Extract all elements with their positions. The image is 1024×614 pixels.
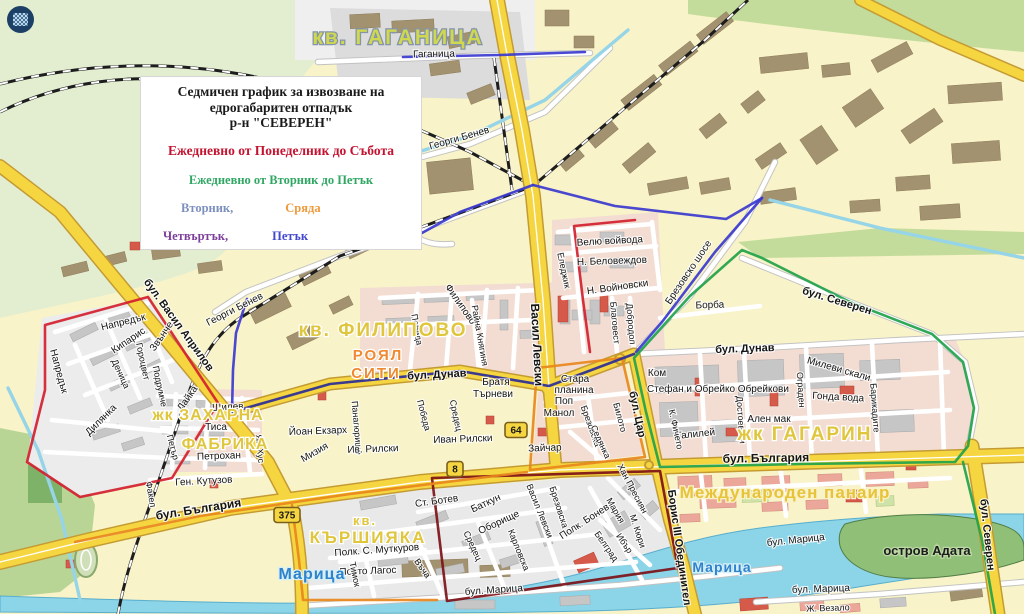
street-label: Стара	[561, 374, 590, 385]
area-label: ФАБРИКА	[182, 436, 269, 453]
road-shield: 64	[505, 423, 527, 438]
legend-thursday: Четвъртък,	[163, 229, 228, 244]
legend-friday: Петък	[272, 229, 308, 244]
street-label: бул. България	[723, 450, 810, 466]
road-shield: 375	[274, 508, 300, 523]
street-label: Ком	[648, 368, 666, 379]
legend-title-line2: едрогабаритен отпадък	[141, 100, 421, 116]
checker-icon	[13, 13, 28, 26]
map-viewport[interactable]: 648375 ГаганицаГеорги БеневГеорги БеневВ…	[0, 0, 1024, 614]
legend-daily-tue-fri: Ежедневно от Вторник до Петък	[141, 173, 421, 188]
street-label: бул. Марица	[792, 582, 851, 596]
area-label: Марица	[692, 559, 751, 575]
legend-daily-mon-sat: Ежедневно от Понеделник до Събота	[141, 143, 421, 159]
area-label: остров Адата	[883, 543, 971, 558]
street-label: Борба	[695, 298, 725, 311]
street-label: Ж. Везало	[806, 602, 850, 614]
area-label: кв. ФИЛИПОВО	[298, 320, 467, 341]
street-label: бул. Дунав	[715, 342, 775, 356]
legend-title-line3: р-н "СЕВЕРЕН"	[141, 115, 421, 131]
svg-text:8: 8	[452, 465, 458, 476]
street-label: Манол	[544, 408, 575, 419]
area-label: СИТИ	[351, 365, 401, 382]
legend-wednesday: Сряда	[285, 201, 320, 216]
street-label: Поп	[555, 396, 573, 407]
street-label: Търневи	[473, 389, 513, 400]
area-label: жк ЗАХАРНА	[151, 407, 263, 424]
area-label: Международен панаир	[680, 483, 891, 502]
area-label: Марица	[279, 566, 346, 583]
road-shield: 8	[447, 462, 463, 477]
legend-tuesday: Вторник,	[181, 201, 233, 216]
street-label: планина	[554, 385, 593, 396]
legend-title-line1: Седмичен график за извозване на	[141, 84, 421, 100]
legend-title: Седмичен график за извозване на едрогаба…	[141, 84, 421, 131]
legend-panel: Седмичен график за извозване на едрогаба…	[140, 76, 422, 250]
map-control-icon[interactable]	[7, 6, 34, 33]
area-label: КЪРШИЯКА	[310, 528, 427, 547]
street-label: Иван Рилски	[433, 433, 493, 446]
roundabout	[645, 461, 653, 469]
street-label: Зайчар	[528, 442, 562, 454]
area-label: РОЯЛ	[353, 347, 404, 364]
area-label: кв.	[353, 513, 377, 528]
svg-text:64: 64	[510, 426, 522, 437]
street-label: Братя	[482, 377, 509, 388]
street-label: Ив. Рилски	[347, 443, 398, 456]
area-label: жк ГАГАРИН	[737, 424, 873, 445]
street-label: Гаганица	[413, 49, 455, 61]
street-label: Порто Лагос	[339, 565, 396, 578]
area-label: кв. ГАГАНИЦА	[312, 26, 483, 49]
svg-text:375: 375	[279, 511, 296, 522]
street-label: Стефан и Обрейко Обрейкови	[647, 383, 789, 395]
